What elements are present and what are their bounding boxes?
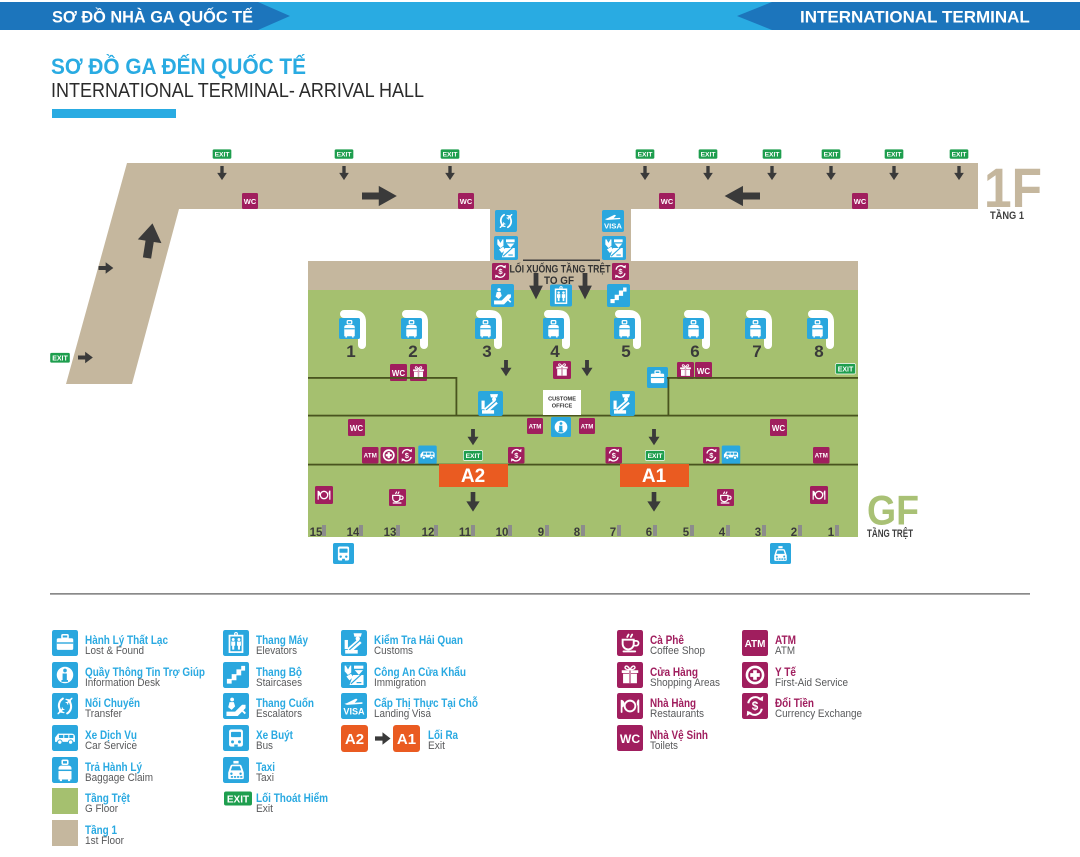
svg-text:14: 14: [347, 527, 360, 539]
svg-text:Elevators: Elevators: [256, 645, 297, 657]
svg-text:Baggage Claim: Baggage Claim: [85, 772, 153, 784]
svg-text:15: 15: [310, 527, 323, 539]
svg-text:Escalators: Escalators: [256, 708, 302, 720]
svg-text:Taxi: Taxi: [256, 772, 274, 784]
svg-text:3: 3: [755, 527, 761, 539]
svg-text:4: 4: [550, 342, 560, 361]
svg-text:Information Desk: Information Desk: [85, 677, 160, 689]
svg-text:Staircases: Staircases: [256, 677, 302, 689]
svg-text:Shopping Areas: Shopping Areas: [650, 677, 720, 689]
svg-text:SƠ ĐỒ NHÀ GA QUỐC TẾ: SƠ ĐỒ NHÀ GA QUỐC TẾ: [52, 7, 253, 27]
svg-text:2: 2: [408, 342, 417, 361]
svg-text:Landing Visa: Landing Visa: [374, 708, 432, 720]
svg-text:5: 5: [683, 527, 690, 539]
svg-text:Lost & Found: Lost & Found: [85, 645, 144, 657]
svg-text:1: 1: [828, 527, 835, 539]
svg-text:7: 7: [752, 342, 761, 361]
svg-text:Toilets: Toilets: [650, 740, 678, 752]
svg-text:Currency Exchange: Currency Exchange: [775, 708, 862, 720]
svg-text:Exit: Exit: [428, 740, 446, 752]
svg-text:11: 11: [459, 527, 472, 539]
svg-text:1: 1: [346, 342, 355, 361]
svg-text:TẦNG TRỆT: TẦNG TRỆT: [867, 527, 913, 540]
svg-text:Coffee Shop: Coffee Shop: [650, 645, 705, 657]
svg-text:4: 4: [719, 527, 726, 539]
svg-text:OFFICE: OFFICE: [552, 404, 573, 410]
svg-text:6: 6: [646, 527, 652, 539]
svg-text:INTERNATIONAL TERMINAL- ARRIVA: INTERNATIONAL TERMINAL- ARRIVAL HALL: [51, 79, 424, 102]
svg-text:A2: A2: [345, 731, 364, 748]
svg-text:7: 7: [610, 527, 616, 539]
svg-text:Restaurants: Restaurants: [650, 708, 704, 720]
svg-text:Bus: Bus: [256, 740, 273, 752]
svg-text:TẦNG 1: TẦNG 1: [990, 209, 1024, 222]
svg-text:ATM: ATM: [775, 645, 795, 657]
svg-text:6: 6: [690, 342, 699, 361]
svg-text:LỐI XUỐNG TẦNG TRỆT: LỐI XUỐNG TẦNG TRỆT: [510, 262, 611, 276]
svg-text:13: 13: [384, 527, 397, 539]
svg-text:A1: A1: [397, 731, 416, 748]
svg-text:G Floor: G Floor: [85, 803, 118, 815]
svg-text:SƠ ĐỒ GA ĐẾN QUỐC TẾ: SƠ ĐỒ GA ĐẾN QUỐC TẾ: [51, 53, 306, 79]
svg-text:3: 3: [482, 342, 491, 361]
svg-text:8: 8: [574, 527, 581, 539]
svg-text:Immigration: Immigration: [374, 677, 426, 689]
svg-text:Car Service: Car Service: [85, 740, 137, 752]
svg-text:Transfer: Transfer: [85, 708, 122, 720]
svg-text:9: 9: [538, 527, 544, 539]
svg-text:2: 2: [791, 527, 797, 539]
svg-text:8: 8: [814, 342, 823, 361]
svg-text:10: 10: [496, 527, 509, 539]
svg-text:A2: A2: [461, 466, 485, 487]
svg-text:INTERNATIONAL TERMINAL: INTERNATIONAL TERMINAL: [800, 8, 1030, 27]
svg-text:12: 12: [422, 527, 435, 539]
svg-text:5: 5: [621, 342, 630, 361]
svg-text:CUSTOME: CUSTOME: [548, 397, 576, 403]
svg-text:Customs: Customs: [374, 645, 413, 657]
svg-text:Exit: Exit: [256, 803, 274, 815]
svg-text:First-Aid Service: First-Aid Service: [775, 677, 848, 689]
svg-text:1st Floor: 1st Floor: [85, 835, 124, 847]
svg-text:A1: A1: [642, 466, 667, 487]
svg-text:GF: GF: [867, 487, 919, 534]
